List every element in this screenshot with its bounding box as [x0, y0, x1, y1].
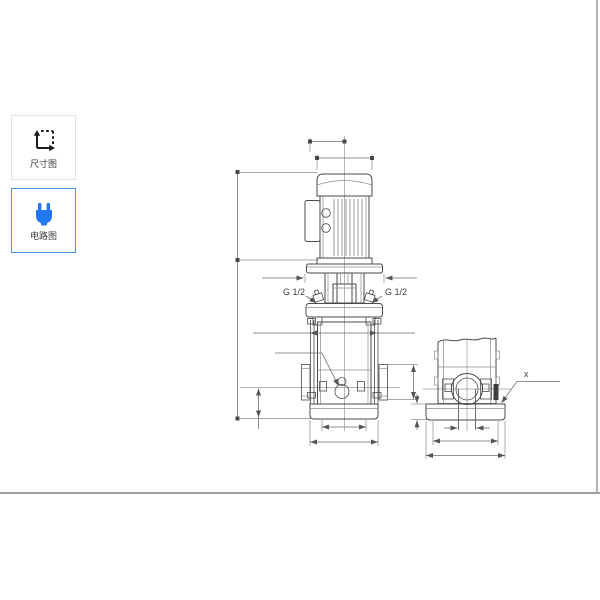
vent-plug-left: [312, 289, 324, 302]
centerlines: [240, 136, 511, 431]
port-label-right: G 1/2: [385, 287, 407, 297]
motor: [305, 174, 372, 258]
side-view: [426, 338, 505, 430]
port-flange-right: [379, 365, 388, 401]
base-corner-label: x: [524, 369, 529, 379]
clamp-plate: [494, 384, 499, 400]
port-flange-left: [302, 365, 311, 401]
content-right-border: [596, 0, 598, 493]
product-viewer: 尺寸图 电路图: [0, 0, 600, 600]
leader-line: [275, 353, 339, 386]
x-leader-line: [502, 382, 561, 404]
port-label-left: G 1/2: [283, 287, 305, 297]
dimension-lines: [236, 138, 561, 459]
port-circle: [335, 385, 349, 399]
base-front: [310, 404, 378, 419]
vent-plug-right: [364, 289, 376, 302]
base-side: [426, 404, 505, 420]
terminal-box: [305, 201, 320, 242]
content-bottom-divider: [0, 492, 600, 494]
pump-dimensional-drawing: G 1/2 G 1/2 x: [0, 0, 600, 600]
